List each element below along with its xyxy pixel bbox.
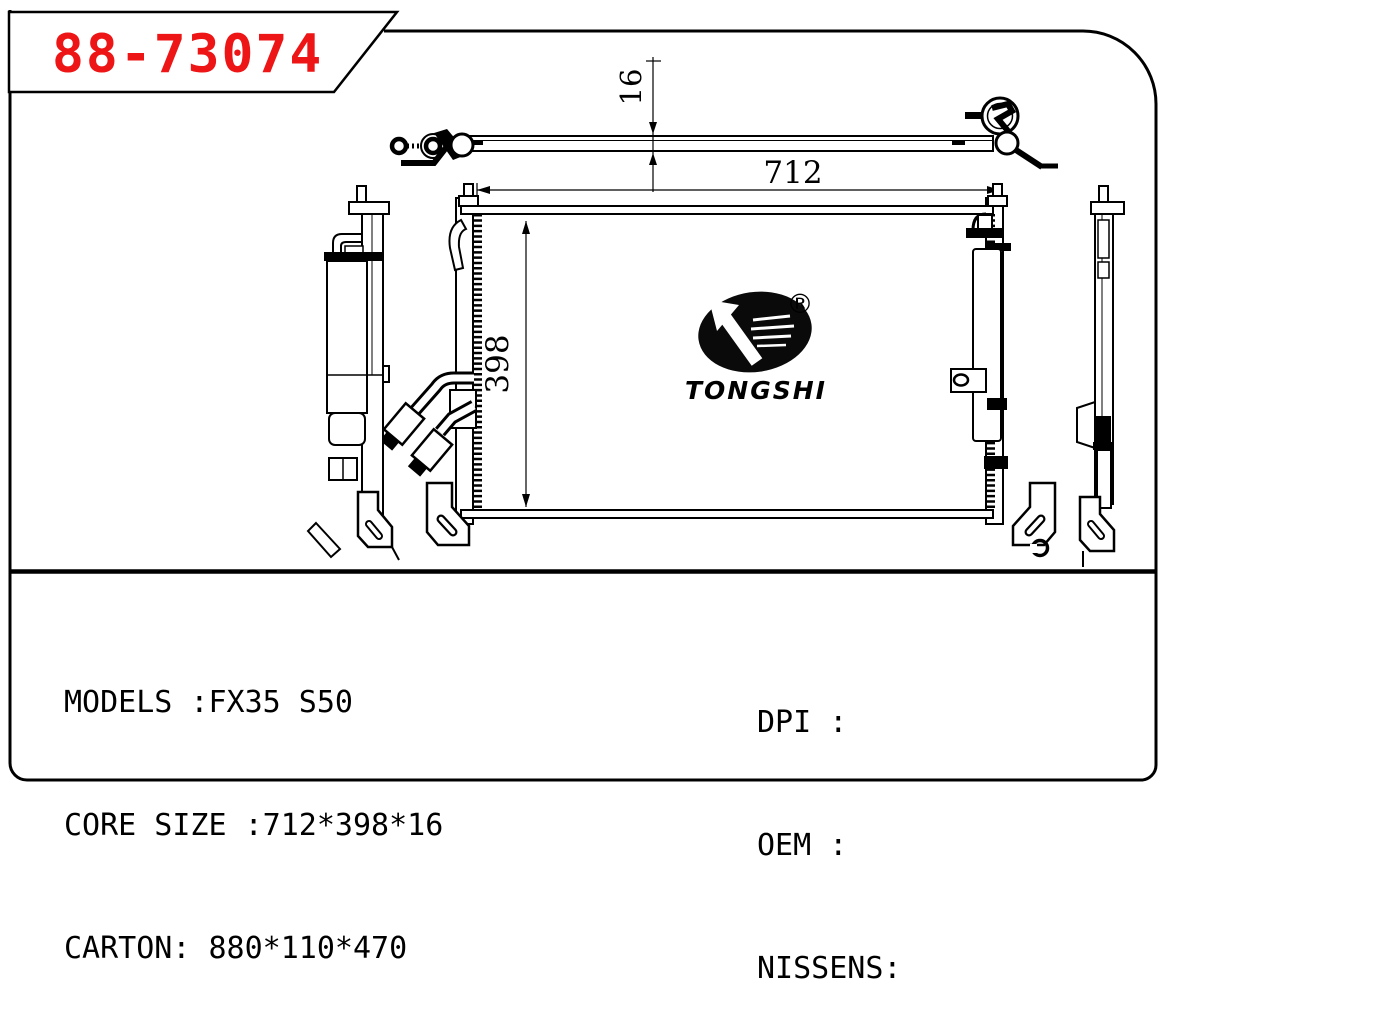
brand-text: TONGSHI xyxy=(685,376,827,405)
part-number: 88-73074 xyxy=(52,24,352,85)
dim-core-depth: 16 xyxy=(614,57,661,192)
spec-models: MODELS :FX35 S50 xyxy=(64,682,443,723)
spec-carton: CARTON: 880*110*470 xyxy=(64,928,443,969)
spec-core-size: CORE SIZE :712*398*16 xyxy=(64,805,443,846)
dim-core-width: 712 xyxy=(477,155,1000,201)
front-view xyxy=(377,184,1055,556)
spec-oem: OEM : xyxy=(757,825,902,866)
dim-core-width-label: 712 xyxy=(763,155,822,191)
registered-mark: ® xyxy=(787,289,814,320)
spec-nissens: NISSENS: xyxy=(757,948,902,989)
condenser-logo: ® TONGSHI xyxy=(685,284,827,405)
dim-core-height-label: 398 xyxy=(480,334,516,393)
title-block-right: DPI : OEM : NISSENS: xyxy=(757,620,902,1030)
dim-core-height: 398 xyxy=(480,221,530,507)
left-side-view xyxy=(308,186,399,560)
top-view xyxy=(392,98,1058,167)
spec-dpi: DPI : xyxy=(757,702,902,743)
title-block-left: MODELS :FX35 S50 CORE SIZE :712*398*16 C… xyxy=(64,600,443,1010)
dim-core-depth-label: 16 xyxy=(614,69,648,106)
right-side-view xyxy=(1077,186,1124,567)
